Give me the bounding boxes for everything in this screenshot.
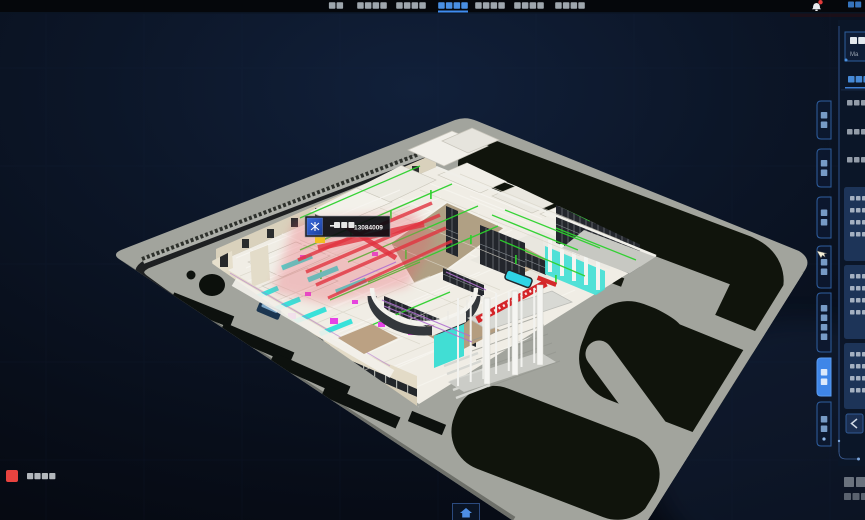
svg-text:Ma: Ma <box>850 52 859 58</box>
svg-text:13084009: 13084009 <box>354 225 383 232</box>
